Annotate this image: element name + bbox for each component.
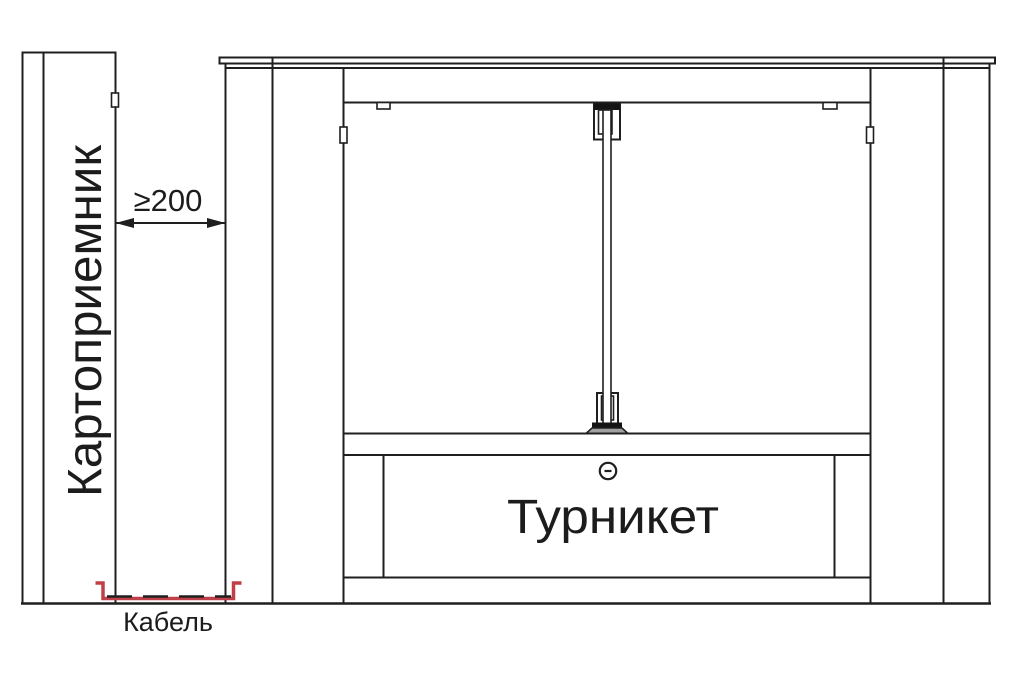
turnstile-left-post bbox=[226, 68, 348, 604]
cable-label: Кабель bbox=[123, 607, 213, 637]
dimension-arrowhead-right bbox=[207, 218, 226, 228]
right-post-glass-clip bbox=[867, 127, 874, 143]
turnstile-label: Турникет bbox=[507, 491, 719, 544]
dimension-arrowhead-left bbox=[116, 218, 135, 228]
turnstile-right-post bbox=[867, 68, 990, 604]
installation-diagram: Картоприемник ≥200 bbox=[0, 0, 1024, 676]
gate-base-flange bbox=[592, 423, 622, 429]
gate-mechanism bbox=[586, 104, 628, 434]
cable-annotation: Кабель bbox=[96, 583, 242, 637]
diagram-canvas: Картоприемник ≥200 bbox=[0, 0, 1024, 676]
card-reader-column: Картоприемник bbox=[22, 53, 119, 604]
turnstile-lower-housing: Турникет bbox=[344, 434, 871, 578]
turnstile-top-beam bbox=[220, 58, 996, 69]
clearance-dimension: ≥200 bbox=[116, 183, 226, 228]
beam-lower-band bbox=[226, 64, 990, 69]
left-post-glass-clip bbox=[340, 127, 347, 143]
dimension-label: ≥200 bbox=[134, 183, 203, 218]
gate-top-bracket-cap bbox=[594, 104, 620, 111]
card-reader-mount-clip bbox=[112, 93, 119, 107]
gate-rod bbox=[603, 110, 611, 424]
rail-clip-left bbox=[377, 103, 390, 110]
rail-clip-right bbox=[823, 103, 837, 110]
card-reader-label: Картоприемник bbox=[59, 144, 112, 497]
